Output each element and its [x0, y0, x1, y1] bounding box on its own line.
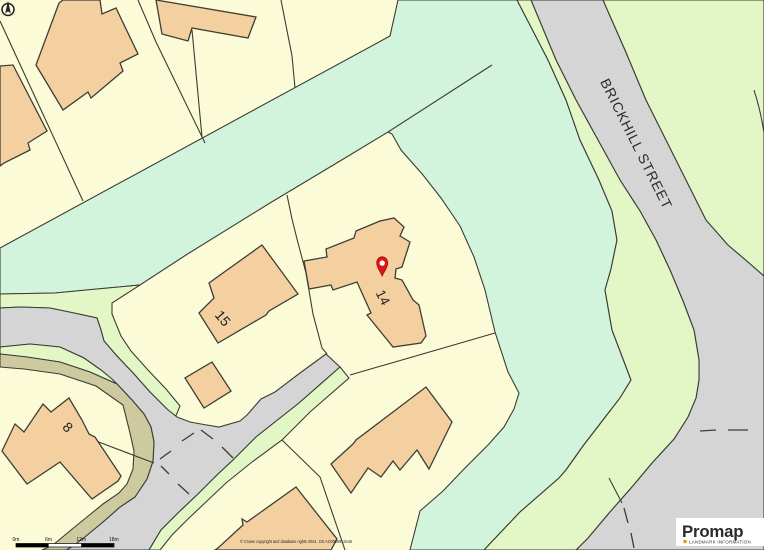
svg-text:12m: 12m	[76, 537, 86, 543]
svg-text:© Crown copyright and database: © Crown copyright and database rights 20…	[240, 538, 352, 544]
svg-text:18m: 18m	[109, 537, 119, 543]
svg-text:0m: 0m	[13, 537, 20, 543]
svg-text:Promap: Promap	[682, 522, 743, 541]
svg-text:6m: 6m	[45, 537, 52, 543]
svg-text:LANDMARK INFORMATION: LANDMARK INFORMATION	[689, 540, 751, 545]
